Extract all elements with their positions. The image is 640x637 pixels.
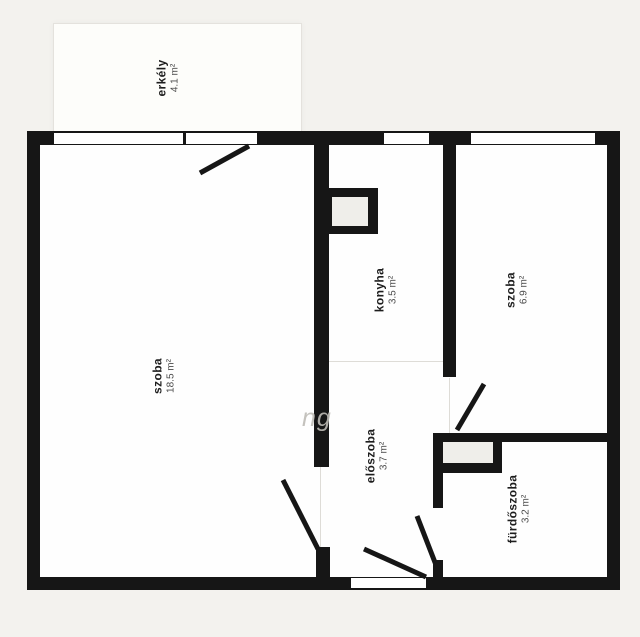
room-area: 3.7 m² (379, 429, 390, 484)
bedroom-door-opening-line (449, 378, 450, 433)
room-name: erkély (156, 59, 169, 96)
wall-kitchen-bedroom-divider (443, 145, 456, 377)
wall-livingroom-door-stub (316, 547, 330, 577)
room-area: 4.1 m² (170, 59, 181, 96)
room-name: fürdőszoba (507, 475, 520, 544)
room-label-eloszoba: előszoba 3.7 m² (365, 429, 390, 484)
room-area: 18.5 m² (166, 358, 177, 394)
balcony-window-divider (183, 132, 186, 145)
kitchen-shaft-inner (332, 197, 368, 226)
kitchen-shaft (323, 188, 378, 234)
livingroom-door-opening-line (320, 467, 321, 547)
bedroom-window (470, 132, 596, 145)
room-name: előszoba (365, 429, 378, 484)
room-area: 3.5 m² (388, 268, 399, 312)
wall-bathroom-left-stub (433, 560, 443, 577)
floorplan-canvas: erkély 4.1 m² szoba 18.5 m² konyha 3.5 m… (0, 0, 640, 637)
wall-bathroom-left (433, 473, 443, 508)
room-label-szoba-nagy: szoba 18.5 m² (152, 358, 177, 394)
room-name: konyha (374, 268, 387, 312)
kitchen-window (383, 132, 430, 145)
room-name: szoba (152, 358, 165, 394)
bathroom-shaft (433, 433, 502, 473)
room-label-erkely: erkély 4.1 m² (156, 59, 181, 96)
room-label-furdoszoba: fürdőszoba 3.2 m² (507, 475, 532, 544)
room-area: 3.2 m² (521, 475, 532, 544)
entry-door-opening (350, 577, 427, 589)
room-label-szoba-kis: szoba 6.9 m² (505, 272, 530, 308)
balcony-window (53, 132, 258, 145)
bathroom-shaft-inner (443, 442, 493, 463)
room-area: 6.9 m² (519, 272, 530, 308)
kitchen-hall-boundary-line (329, 361, 443, 362)
room-name: szoba (505, 272, 518, 308)
room-label-konyha: konyha 3.5 m² (374, 268, 399, 312)
wall-bathroom-top (497, 433, 607, 442)
watermark-text: ng (302, 404, 332, 433)
